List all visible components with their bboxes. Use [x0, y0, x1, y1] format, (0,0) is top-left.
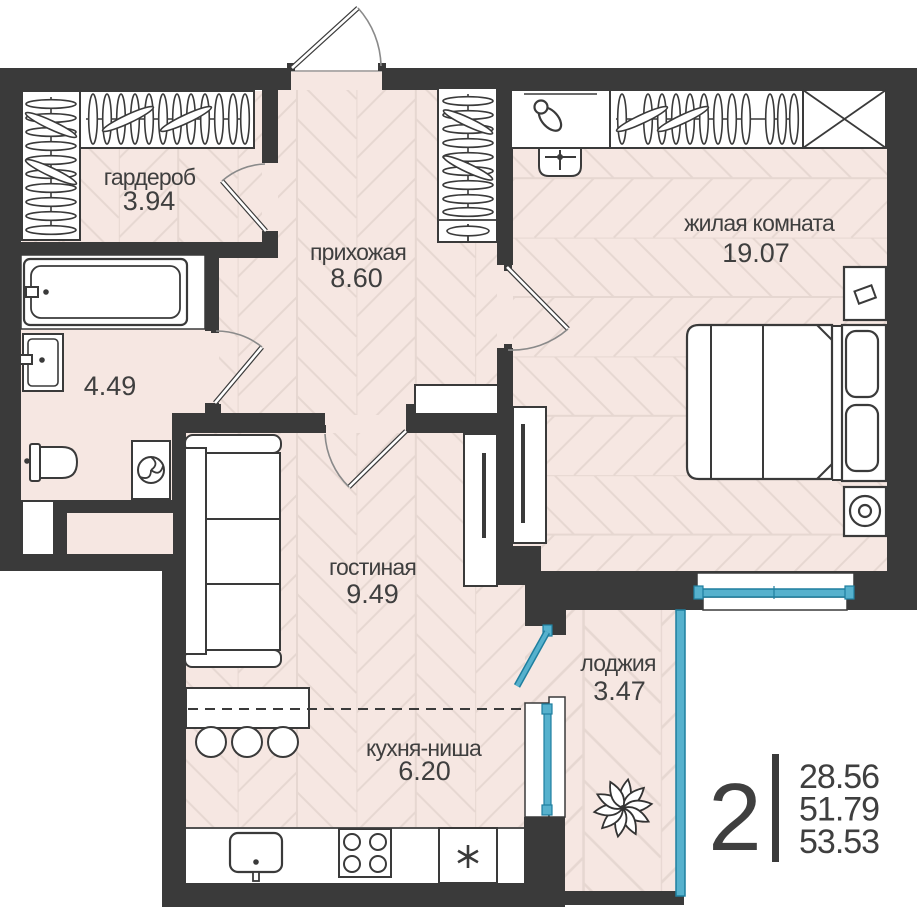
svg-text:4.49: 4.49 [84, 371, 137, 401]
svg-text:8.60: 8.60 [330, 263, 383, 293]
svg-text:53.53: 53.53 [799, 823, 879, 861]
svg-text:лоджия: лоджия [580, 650, 655, 676]
svg-text:19.07: 19.07 [722, 238, 790, 268]
svg-text:9.49: 9.49 [346, 579, 399, 609]
svg-text:жилая комната: жилая комната [684, 210, 835, 236]
svg-text:прихожая: прихожая [310, 239, 406, 265]
svg-text:3.47: 3.47 [593, 676, 646, 706]
svg-text:3.94: 3.94 [123, 186, 176, 216]
svg-text:гостиная: гостиная [329, 554, 416, 580]
svg-text:6.20: 6.20 [398, 756, 451, 786]
svg-text:2: 2 [708, 764, 761, 871]
